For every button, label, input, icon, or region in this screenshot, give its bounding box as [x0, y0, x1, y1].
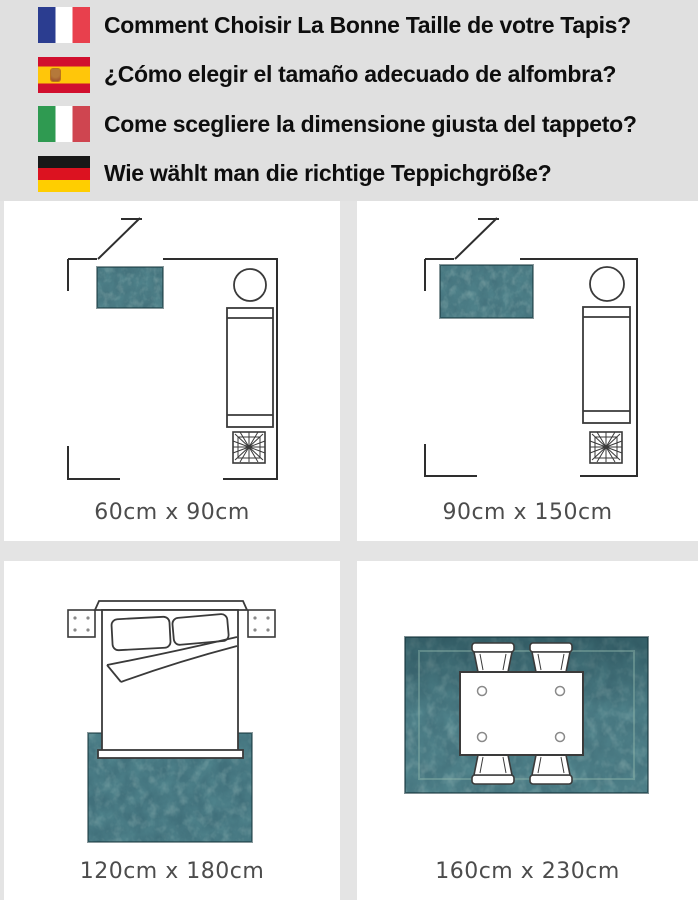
- header-title-spanish: ¿Cómo elegir el tamaño adecuado de alfom…: [104, 61, 616, 88]
- door-icon: [455, 218, 499, 259]
- sofa-icon: [227, 308, 273, 427]
- panel-dining-room: 160cm x 230cm: [357, 561, 698, 900]
- language-header: Comment Choisir La Bonne Taille de votre…: [0, 0, 698, 201]
- rug-size-label: 120cm x 180cm: [4, 859, 340, 884]
- rug: [440, 265, 533, 318]
- plant-icon: [233, 432, 265, 463]
- headboard: [95, 601, 247, 610]
- round-table-icon: [590, 267, 624, 301]
- dining-table-icon: [460, 672, 583, 755]
- footboard: [98, 750, 243, 758]
- header-title-french: Comment Choisir La Bonne Taille de votre…: [104, 12, 631, 39]
- header-title-italian: Come scegliere la dimensione giusta del …: [104, 111, 637, 138]
- bed-icon: [95, 601, 247, 758]
- door-icon: [98, 218, 142, 259]
- rug-size-guide-page: Comment Choisir La Bonne Taille de votre…: [0, 0, 698, 900]
- language-row-french: Comment Choisir La Bonne Taille de votre…: [38, 4, 690, 46]
- italy-flag-icon: [38, 106, 90, 142]
- size-guide-grid: 60cm x 90cm: [0, 201, 698, 900]
- rug: [97, 267, 163, 308]
- panel-living-room-medium: 90cm x 150cm: [357, 201, 698, 541]
- rug-size-label: 90cm x 150cm: [357, 500, 698, 525]
- floor-plan-medium-rug: [357, 201, 698, 541]
- language-row-italian: Come scegliere la dimensione giusta del …: [38, 103, 690, 145]
- rug-size-label: 60cm x 90cm: [4, 500, 340, 525]
- language-row-german: Wie wählt man die richtige Teppichgröße?: [38, 153, 690, 195]
- panel-bedroom: 120cm x 180cm: [4, 561, 340, 900]
- rug-size-label: 160cm x 230cm: [357, 859, 698, 884]
- germany-flag-icon: [38, 156, 90, 192]
- plant-icon: [590, 432, 622, 463]
- language-row-spanish: ¿Cómo elegir el tamaño adecuado de alfom…: [38, 54, 690, 96]
- spain-crest-icon: [51, 69, 60, 81]
- panel-living-room-small: 60cm x 90cm: [4, 201, 340, 541]
- france-flag-icon: [38, 7, 90, 43]
- round-table-icon: [234, 269, 266, 301]
- floor-plan-small-rug: [4, 201, 340, 541]
- header-title-german: Wie wählt man die richtige Teppichgröße?: [104, 160, 551, 187]
- floor-plan-bedroom-rug: [4, 561, 340, 900]
- sofa-icon: [583, 307, 630, 423]
- spain-flag-icon: [38, 57, 90, 93]
- floor-plan-dining-rug: [357, 561, 698, 900]
